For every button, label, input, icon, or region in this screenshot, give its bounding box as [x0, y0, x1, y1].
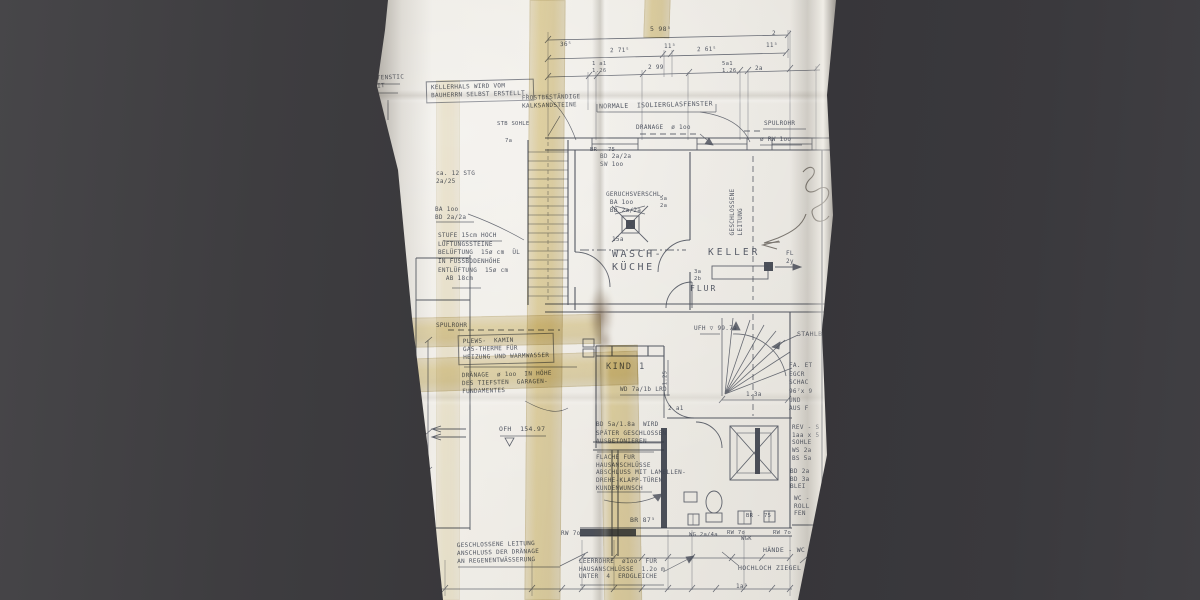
dim-125: 1.25 [662, 371, 669, 385]
dim-261: 2 61⁵ [697, 46, 717, 54]
room-waschkueche: WASCH- KÜCHE [612, 248, 663, 274]
dim-15a: 15a [612, 236, 624, 244]
dim-v564: 5 64 [402, 384, 410, 400]
dim-299: 2 99 [648, 64, 664, 72]
dim-v485: 4 8⁵ [417, 433, 425, 449]
label-drainage-top: DRÄNAGE ø 1oo [636, 124, 691, 132]
dim-7a: 7a [505, 138, 512, 145]
paper-right-edge-fold [790, 0, 836, 600]
label-rw100: ø RW 1oo [760, 136, 791, 144]
dim-11a: 11⁵ [664, 43, 676, 51]
dim-11b: 11⁵ [766, 42, 778, 50]
tape-strip-top [643, 0, 670, 38]
note-geruchsverschluss: GERUCHSVERSCHL. BA 1oo BD 2a/2a [606, 191, 665, 215]
label-br75-bottom: BR - 75 [746, 513, 771, 520]
dim-3a2b: 3a 2b [694, 269, 701, 284]
horizontal-crease-mid [377, 392, 837, 406]
dim-2a1: 2 a1 [668, 405, 684, 413]
label-wg2a4a: WG 2a/4a [689, 532, 718, 539]
room-flur: FLUR [690, 284, 717, 295]
dim-2a: 2a [755, 65, 763, 73]
dim-5a2a: 5a 2a [660, 196, 667, 211]
label-rw7o-c: RW 7o [773, 530, 791, 537]
dim-271: 2 71⁵ [610, 47, 630, 55]
label-sohle: STB SOHLE [497, 121, 530, 128]
stain-smudge-b [598, 330, 612, 352]
paper-sheet: TENSTIC IT KELLERHALS WIRD VOM BAUHERRN … [0, 0, 1200, 600]
label-rw7o-a: RW 7o [561, 530, 581, 538]
label-wgk: WGK [741, 536, 752, 543]
dim-1a5: 1a⁵ [736, 583, 748, 591]
blueprint-photo: TENSTIC IT KELLERHALS WIRD VOM BAUHERRN … [0, 0, 1200, 600]
label-geschlossene-leitung: GESCHLOSSENE LEITUNG [729, 189, 745, 236]
label-ufh-level: UFH ▽ 99.7a [694, 325, 737, 333]
dim-2: 2 [772, 30, 776, 38]
horizontal-crease-top [377, 90, 837, 104]
room-keller: KELLER [708, 247, 760, 260]
dim-5a1: 5a1 1.26 [722, 61, 736, 76]
paper-left-edge-shadow [377, 0, 432, 600]
